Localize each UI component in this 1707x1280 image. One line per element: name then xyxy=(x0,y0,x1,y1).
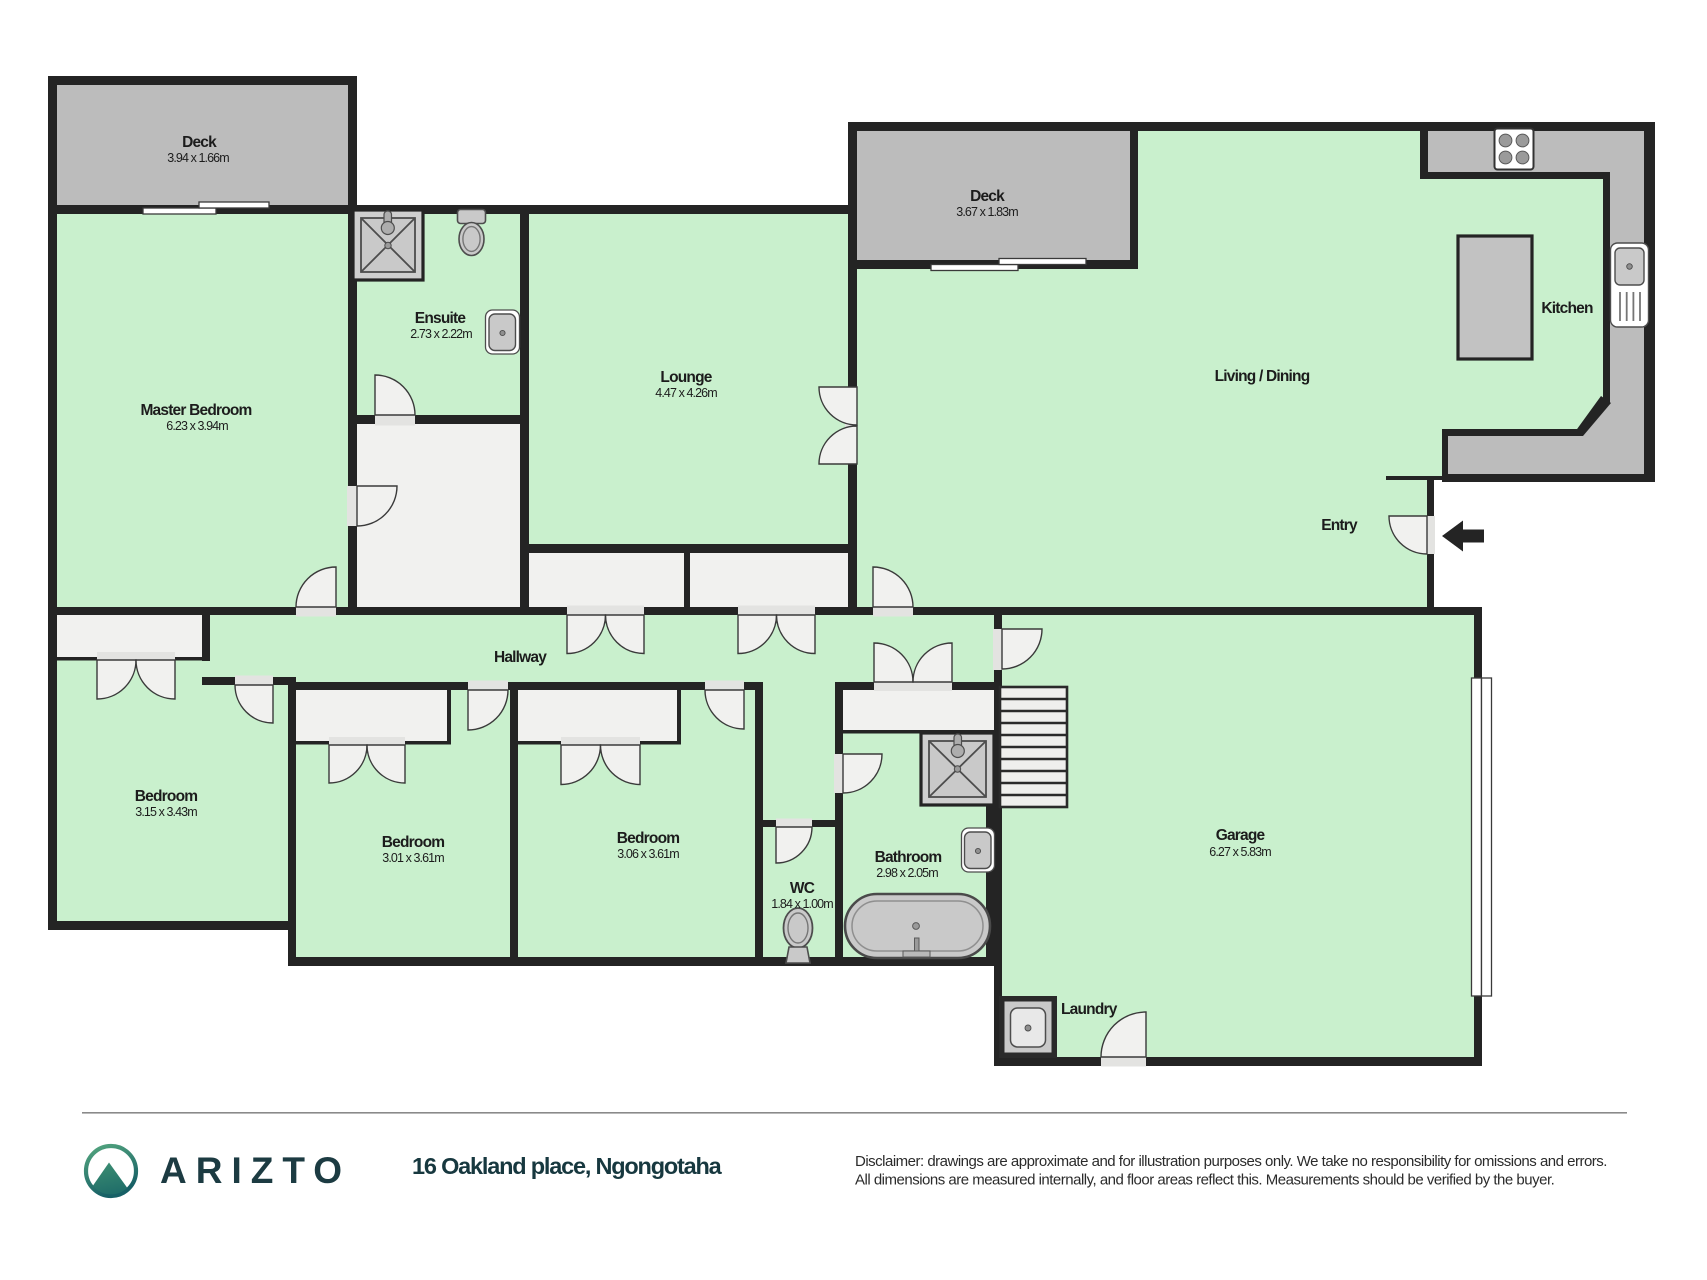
svg-text:Laundry: Laundry xyxy=(1061,1001,1118,1018)
svg-text:Deck: Deck xyxy=(182,134,217,151)
svg-text:Bathroom: Bathroom xyxy=(875,849,942,866)
svg-text:Lounge: Lounge xyxy=(660,369,712,386)
svg-text:2.73 x 2.22m: 2.73 x 2.22m xyxy=(410,327,472,341)
svg-text:Entry: Entry xyxy=(1321,517,1358,534)
svg-text:Ensuite: Ensuite xyxy=(415,310,467,327)
svg-text:Garage: Garage xyxy=(1216,827,1266,844)
svg-text:Kitchen: Kitchen xyxy=(1541,300,1593,317)
svg-text:2.98 x 2.05m: 2.98 x 2.05m xyxy=(876,866,938,880)
svg-text:3.67 x 1.83m: 3.67 x 1.83m xyxy=(956,205,1018,219)
svg-text:Master Bedroom: Master Bedroom xyxy=(140,402,251,419)
svg-text:6.27 x 5.83m: 6.27 x 5.83m xyxy=(1209,845,1271,859)
svg-text:Bedroom: Bedroom xyxy=(135,788,197,805)
svg-text:Hallway: Hallway xyxy=(494,649,547,666)
svg-text:Bedroom: Bedroom xyxy=(382,834,444,851)
svg-text:Living / Dining: Living / Dining xyxy=(1215,368,1310,385)
svg-text:3.06 x 3.61m: 3.06 x 3.61m xyxy=(617,847,679,861)
svg-text:Bedroom: Bedroom xyxy=(617,830,679,847)
svg-text:3.15 x 3.43m: 3.15 x 3.43m xyxy=(135,805,197,819)
svg-text:ARIZTO: ARIZTO xyxy=(160,1150,351,1191)
svg-text:1.84 x 1.00m: 1.84 x 1.00m xyxy=(771,897,833,911)
svg-text:Disclaimer: drawings are appro: Disclaimer: drawings are approximate and… xyxy=(855,1153,1607,1170)
svg-text:All dimensions are measured in: All dimensions are measured internally, … xyxy=(855,1172,1554,1189)
svg-text:WC: WC xyxy=(790,880,815,897)
svg-text:4.47 x 4.26m: 4.47 x 4.26m xyxy=(655,386,717,400)
svg-text:16 Oakland place, Ngongotaha: 16 Oakland place, Ngongotaha xyxy=(412,1153,723,1179)
svg-text:3.01 x 3.61m: 3.01 x 3.61m xyxy=(382,851,444,865)
svg-text:6.23 x 3.94m: 6.23 x 3.94m xyxy=(166,419,228,433)
svg-text:Deck: Deck xyxy=(970,188,1005,205)
svg-text:3.94 x 1.66m: 3.94 x 1.66m xyxy=(167,151,229,165)
